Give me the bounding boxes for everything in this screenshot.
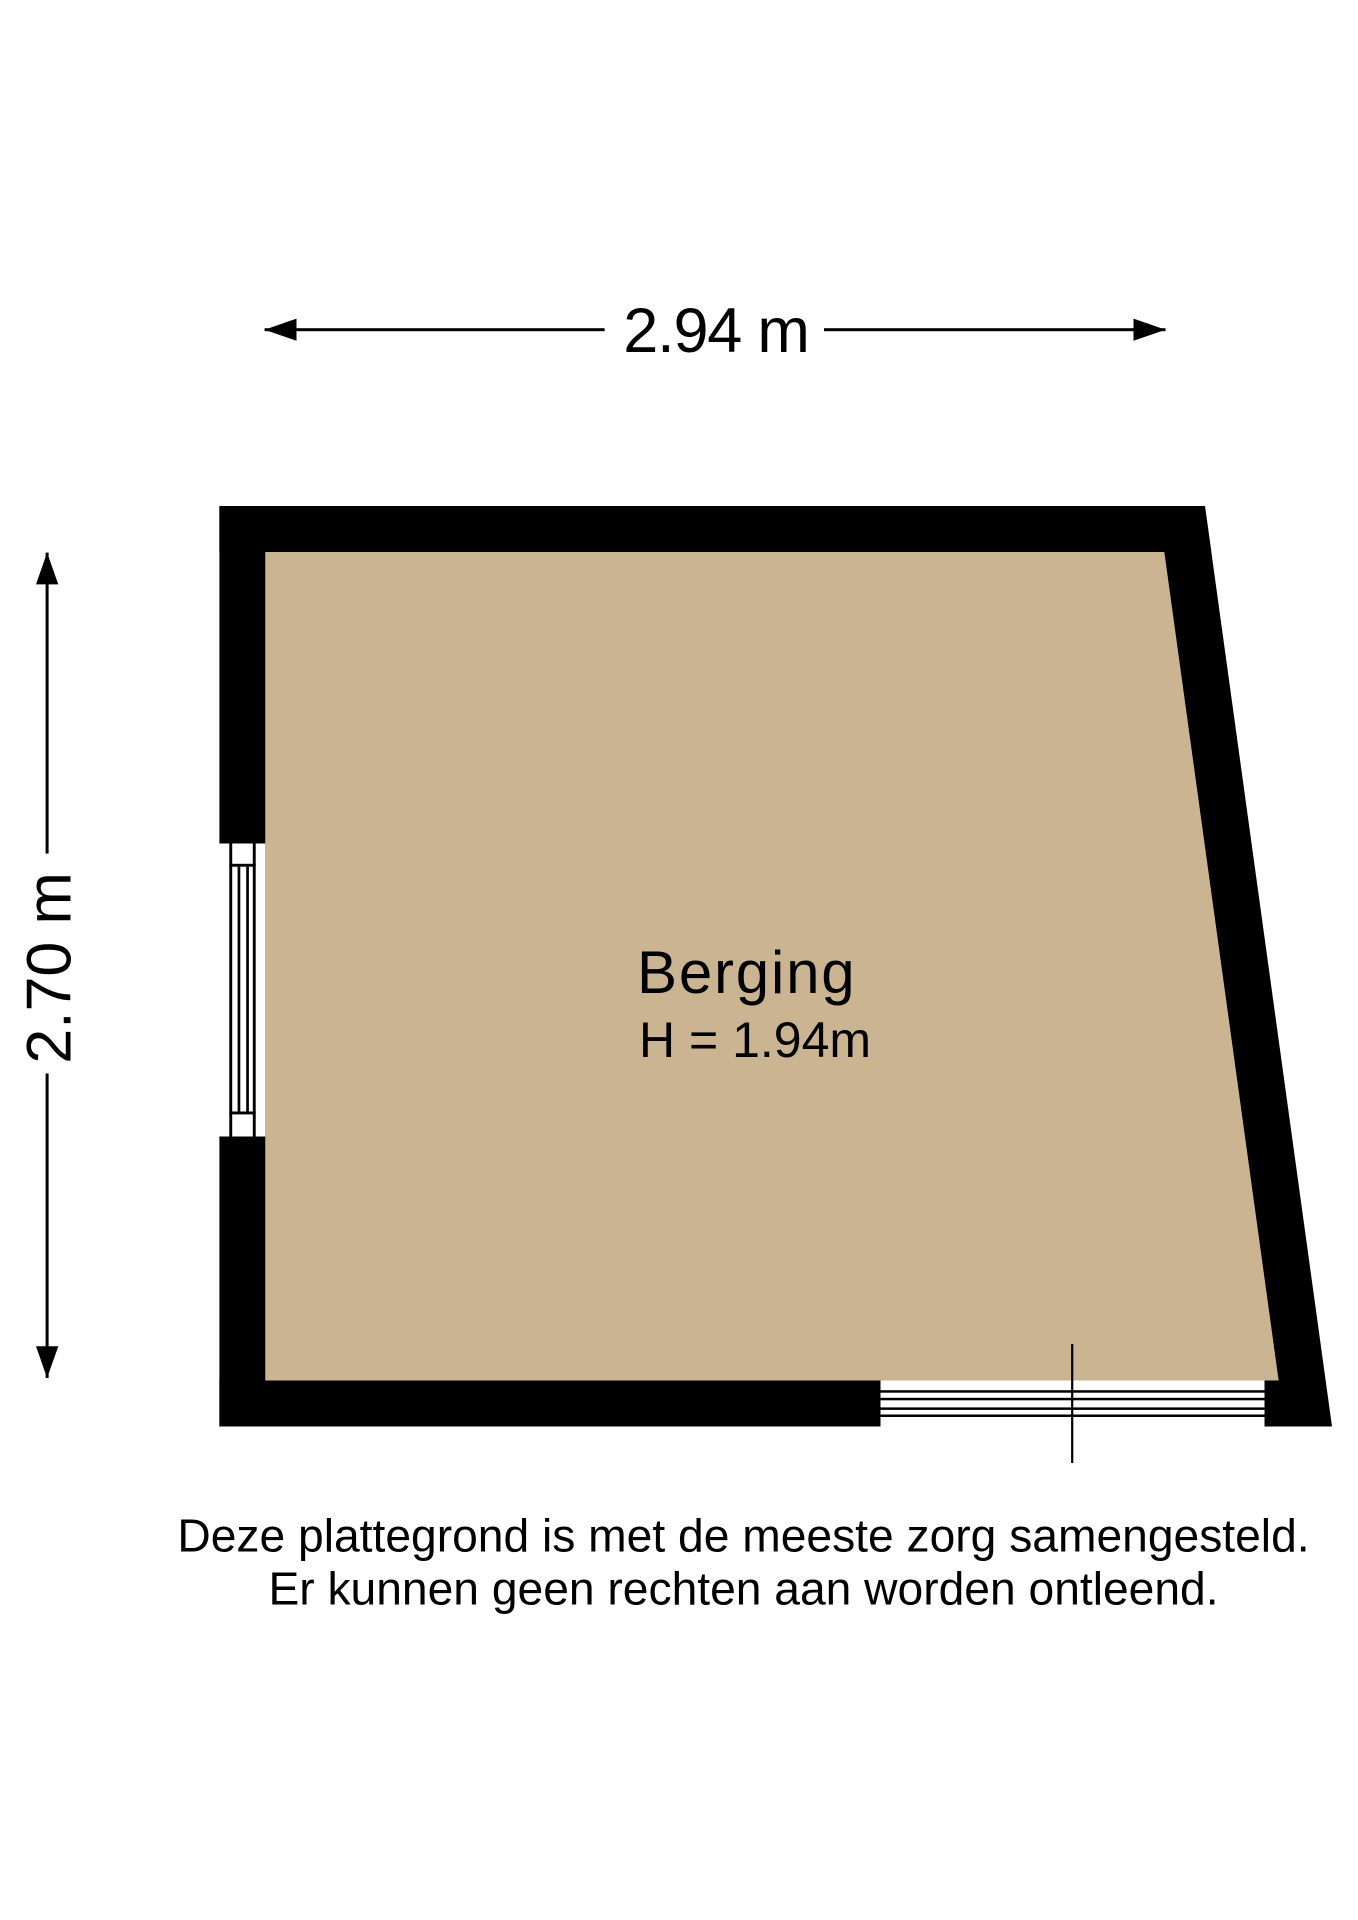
svg-text:2.70 m: 2.70 m — [15, 872, 85, 1063]
svg-text:Er kunnen geen rechten aan wor: Er kunnen geen rechten aan worden ontlee… — [268, 1563, 1218, 1615]
svg-text:Berging: Berging — [637, 939, 856, 1006]
svg-text:Deze plattegrond is met de mee: Deze plattegrond is met de meeste zorg s… — [177, 1510, 1309, 1562]
svg-text:2.94 m: 2.94 m — [623, 296, 808, 366]
svg-text:H = 1.94m: H = 1.94m — [639, 1012, 871, 1068]
